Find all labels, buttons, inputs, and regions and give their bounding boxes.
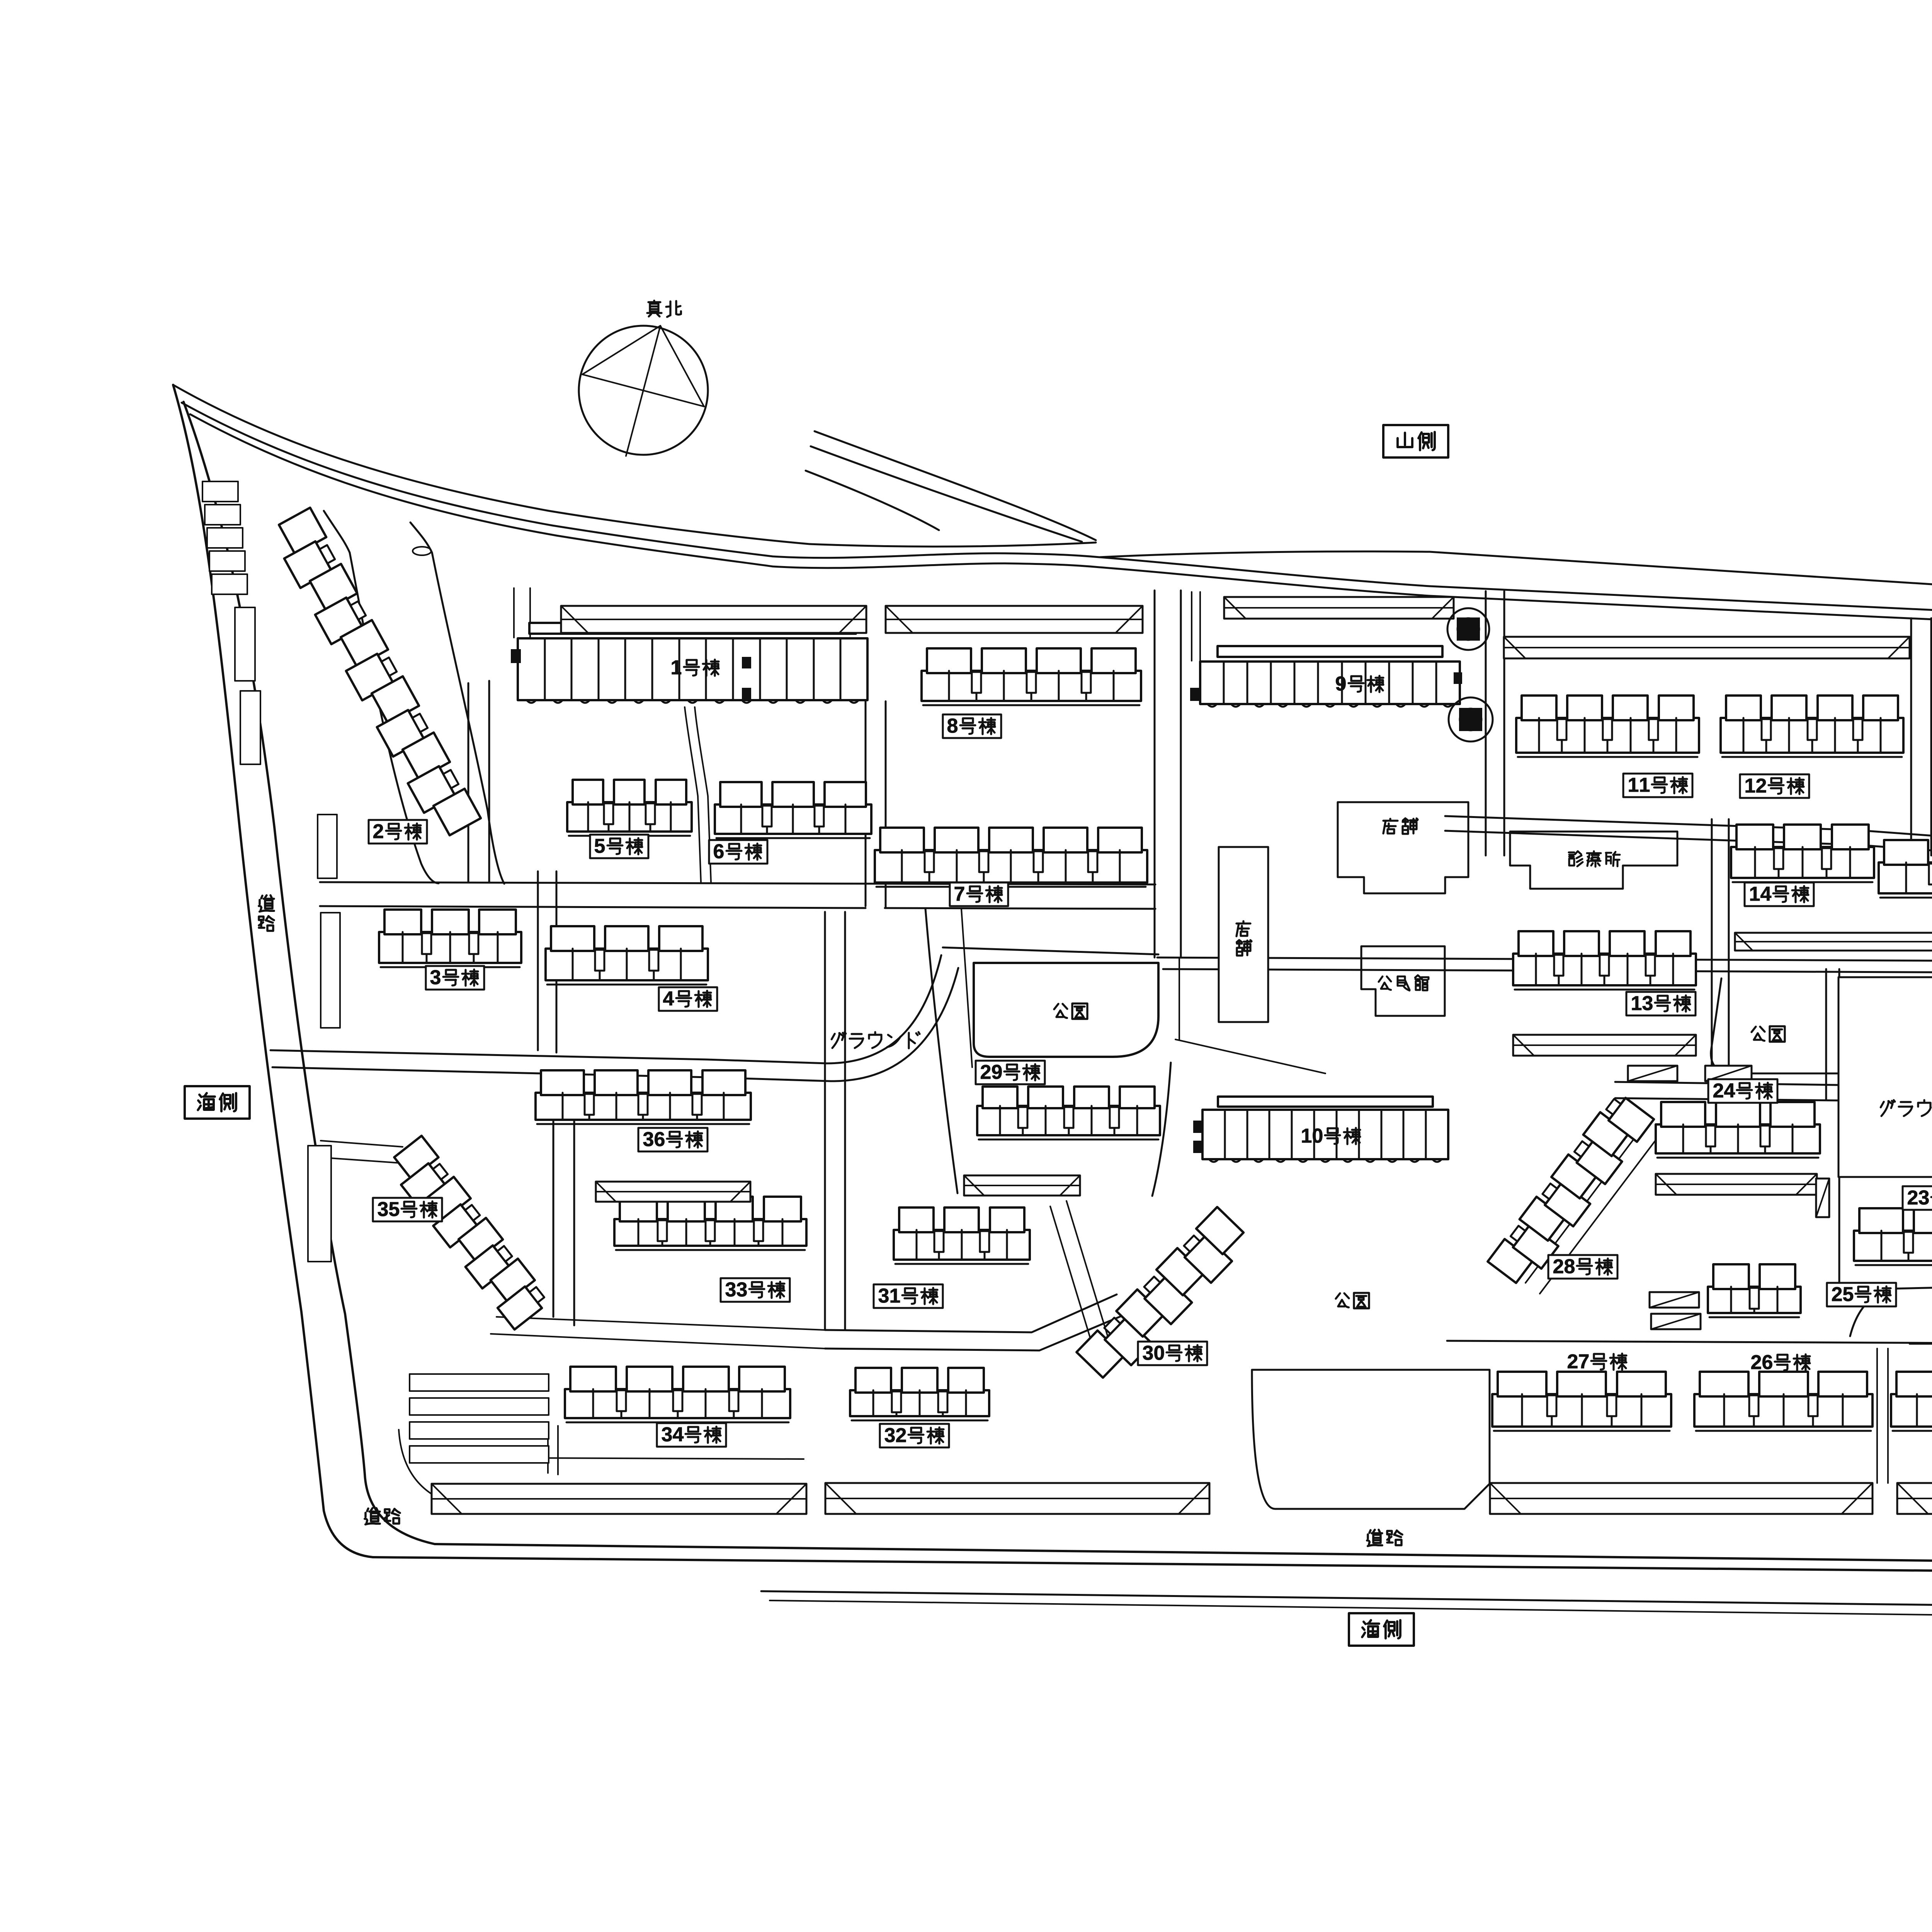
- svg-text:4: 4: [673, 1423, 684, 1446]
- svg-text:1: 1: [1301, 1125, 1312, 1147]
- svg-text:9: 9: [1335, 673, 1347, 695]
- svg-text:1: 1: [1745, 775, 1756, 797]
- svg-text:2: 2: [1832, 1283, 1843, 1306]
- svg-text:7: 7: [954, 883, 965, 905]
- svg-text:7: 7: [1578, 1350, 1590, 1373]
- svg-text:3: 3: [725, 1279, 736, 1301]
- svg-text:4: 4: [663, 988, 674, 1010]
- svg-text:5: 5: [594, 835, 605, 857]
- svg-text:4: 4: [1760, 883, 1772, 905]
- svg-text:3: 3: [878, 1285, 889, 1307]
- svg-text:1: 1: [1628, 774, 1639, 796]
- svg-text:1: 1: [1749, 883, 1760, 905]
- svg-text:2: 2: [1756, 775, 1767, 797]
- svg-text:8: 8: [1564, 1255, 1575, 1278]
- svg-text:1: 1: [1631, 992, 1642, 1015]
- svg-text:5: 5: [1843, 1283, 1854, 1306]
- svg-text:1: 1: [671, 656, 682, 679]
- svg-text:2: 2: [1751, 1351, 1762, 1374]
- svg-text:4: 4: [1724, 1080, 1735, 1102]
- svg-text:3: 3: [1642, 992, 1653, 1015]
- svg-text:2: 2: [373, 820, 384, 843]
- svg-text:1: 1: [889, 1285, 901, 1307]
- svg-text:2: 2: [1567, 1350, 1578, 1373]
- svg-text:3: 3: [1143, 1342, 1154, 1364]
- svg-text:3: 3: [884, 1424, 896, 1447]
- svg-text:3: 3: [643, 1128, 654, 1151]
- svg-text:0: 0: [1154, 1342, 1165, 1364]
- svg-text:1: 1: [1639, 774, 1650, 796]
- svg-text:6: 6: [713, 840, 724, 863]
- svg-text:6: 6: [1762, 1351, 1773, 1374]
- svg-text:2: 2: [980, 1061, 992, 1083]
- svg-text:9: 9: [992, 1061, 1003, 1083]
- svg-text:2: 2: [1713, 1080, 1724, 1102]
- svg-text:3: 3: [430, 966, 441, 989]
- svg-text:8: 8: [947, 715, 958, 737]
- svg-text:2: 2: [1553, 1255, 1564, 1278]
- svg-text:3: 3: [662, 1423, 673, 1446]
- svg-text:3: 3: [378, 1198, 389, 1221]
- svg-text:5: 5: [389, 1198, 400, 1221]
- svg-text:6: 6: [654, 1128, 665, 1151]
- svg-text:3: 3: [736, 1279, 748, 1301]
- svg-text:2: 2: [1907, 1187, 1918, 1209]
- svg-text:2: 2: [896, 1424, 907, 1447]
- svg-text:3: 3: [1918, 1187, 1930, 1209]
- svg-text:0: 0: [1312, 1125, 1323, 1147]
